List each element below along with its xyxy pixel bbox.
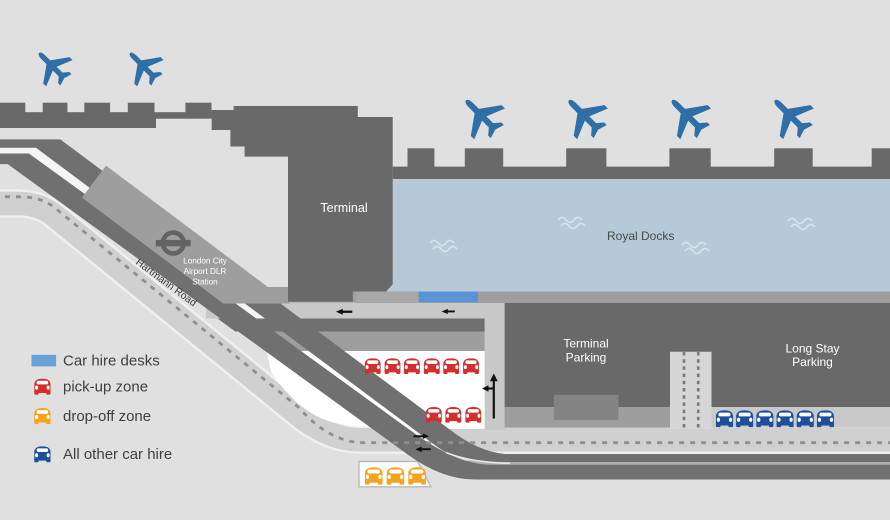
- svg-text:Airport DLR: Airport DLR: [184, 267, 227, 276]
- svg-text:Station: Station: [192, 278, 218, 287]
- svg-text:Parking: Parking: [566, 351, 607, 365]
- svg-text:Parking: Parking: [792, 355, 833, 369]
- svg-text:Terminal: Terminal: [563, 337, 608, 351]
- svg-text:Royal Docks: Royal Docks: [607, 229, 674, 243]
- svg-text:Terminal: Terminal: [320, 201, 367, 215]
- svg-text:All other car hire: All other car hire: [63, 446, 172, 463]
- svg-text:Long Stay: Long Stay: [785, 342, 839, 356]
- svg-text:Car hire desks: Car hire desks: [63, 353, 160, 370]
- svg-text:drop-off zone: drop-off zone: [63, 408, 151, 425]
- svg-text:pick-up zone: pick-up zone: [63, 379, 148, 396]
- svg-text:London City: London City: [183, 257, 228, 266]
